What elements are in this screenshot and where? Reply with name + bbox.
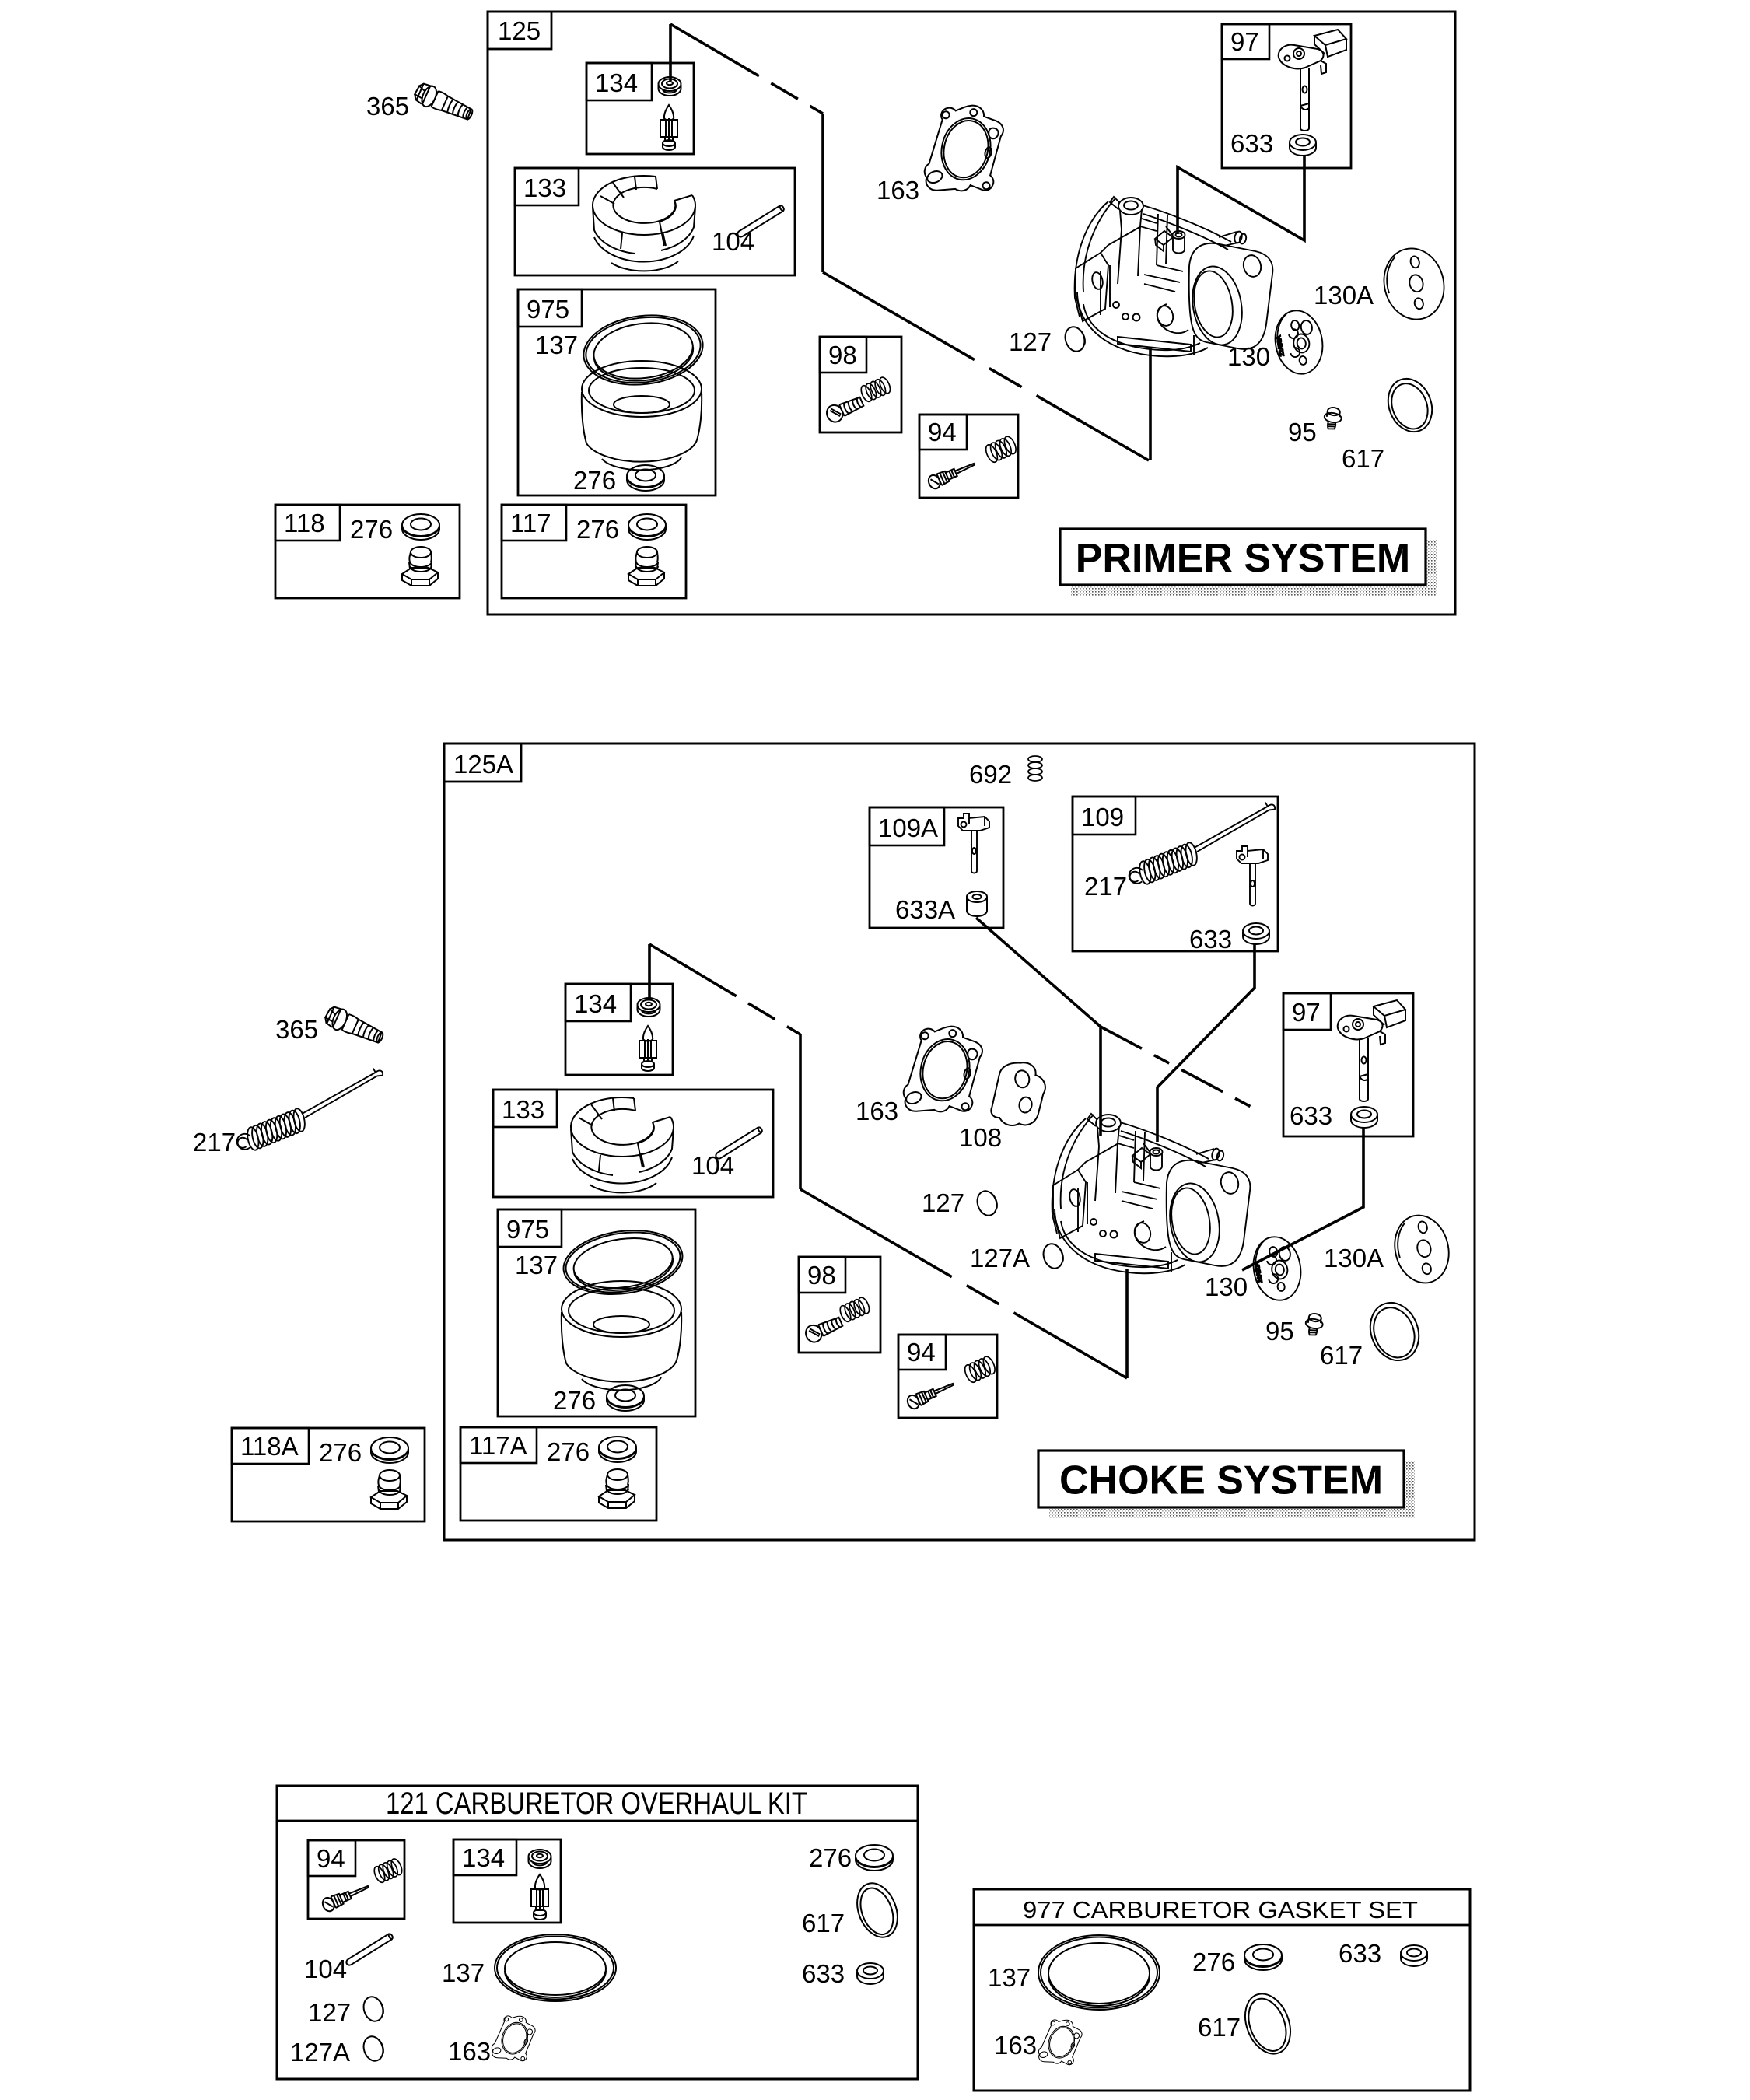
- svg-text:617: 617: [1342, 444, 1384, 473]
- svg-text:137: 137: [988, 1963, 1031, 1992]
- svg-text:276: 276: [809, 1843, 852, 1872]
- svg-text:104: 104: [691, 1151, 734, 1180]
- svg-text:104: 104: [712, 227, 754, 256]
- svg-text:137: 137: [442, 1958, 485, 1987]
- svg-text:104: 104: [304, 1955, 347, 1983]
- svg-text:97: 97: [1292, 998, 1321, 1027]
- svg-text:127: 127: [308, 1998, 351, 2027]
- svg-text:163: 163: [994, 2031, 1037, 2060]
- svg-text:127: 127: [1009, 327, 1052, 356]
- svg-text:975: 975: [527, 295, 569, 324]
- svg-text:130A: 130A: [1324, 1244, 1384, 1272]
- svg-text:109A: 109A: [878, 814, 938, 842]
- svg-text:PRIMER SYSTEM: PRIMER SYSTEM: [1076, 536, 1411, 581]
- svg-text:127A: 127A: [970, 1244, 1030, 1272]
- svg-text:125A: 125A: [453, 750, 513, 779]
- svg-text:633: 633: [1189, 925, 1232, 954]
- svg-text:137: 137: [535, 331, 578, 359]
- svg-text:365: 365: [275, 1015, 318, 1044]
- svg-text:276: 276: [319, 1438, 362, 1467]
- svg-text:118: 118: [284, 509, 325, 537]
- svg-text:163: 163: [448, 2037, 491, 2066]
- svg-text:95: 95: [1288, 418, 1317, 446]
- svg-text:130: 130: [1205, 1272, 1248, 1301]
- svg-text:276: 276: [1192, 1948, 1235, 1976]
- svg-text:276: 276: [350, 515, 393, 544]
- svg-text:217: 217: [193, 1128, 236, 1157]
- svg-text:276: 276: [573, 466, 616, 495]
- svg-text:633: 633: [802, 1959, 845, 1988]
- svg-text:22A90A: 22A90A: [1275, 335, 1286, 357]
- svg-text:127A: 127A: [290, 2038, 350, 2067]
- svg-text:217: 217: [1084, 872, 1127, 901]
- svg-text:134: 134: [595, 68, 638, 97]
- svg-text:121 CARBURETOR OVERHAUL KIT: 121 CARBURETOR OVERHAUL KIT: [386, 1787, 807, 1821]
- svg-text:98: 98: [807, 1261, 836, 1290]
- svg-text:633: 633: [1290, 1101, 1332, 1130]
- svg-text:163: 163: [877, 176, 919, 205]
- svg-text:633: 633: [1230, 129, 1273, 158]
- svg-text:134: 134: [574, 989, 617, 1018]
- svg-text:109: 109: [1081, 803, 1124, 831]
- svg-text:133: 133: [523, 173, 566, 202]
- svg-text:692: 692: [969, 760, 1012, 789]
- svg-text:97: 97: [1230, 27, 1259, 56]
- svg-text:95: 95: [1265, 1317, 1294, 1346]
- svg-text:22A90A: 22A90A: [1253, 1262, 1264, 1283]
- svg-text:617: 617: [1198, 2013, 1241, 2042]
- svg-text:130: 130: [1227, 342, 1270, 371]
- svg-text:133: 133: [502, 1095, 544, 1124]
- svg-text:163: 163: [856, 1097, 898, 1125]
- svg-text:633A: 633A: [895, 895, 955, 924]
- svg-text:94: 94: [928, 418, 957, 446]
- svg-text:117A: 117A: [469, 1431, 527, 1460]
- svg-text:CHOKE SYSTEM: CHOKE SYSTEM: [1059, 1458, 1383, 1503]
- svg-text:617: 617: [802, 1909, 845, 1937]
- svg-text:365: 365: [366, 92, 409, 121]
- svg-text:125: 125: [498, 16, 541, 45]
- svg-text:137: 137: [515, 1251, 558, 1279]
- svg-text:977 CARBURETOR GASKET SET: 977 CARBURETOR GASKET SET: [1023, 1896, 1418, 1923]
- svg-text:108: 108: [959, 1123, 1002, 1152]
- svg-text:118A: 118A: [240, 1432, 299, 1461]
- svg-text:276: 276: [553, 1386, 596, 1415]
- svg-text:127: 127: [922, 1188, 964, 1217]
- svg-text:276: 276: [547, 1437, 590, 1466]
- svg-text:94: 94: [907, 1338, 936, 1367]
- svg-text:98: 98: [828, 341, 857, 369]
- svg-text:134: 134: [462, 1843, 505, 1872]
- svg-text:94: 94: [317, 1844, 345, 1873]
- svg-text:975: 975: [506, 1215, 549, 1244]
- svg-text:633: 633: [1339, 1939, 1381, 1968]
- svg-text:617: 617: [1320, 1341, 1363, 1370]
- svg-text:130A: 130A: [1314, 281, 1374, 310]
- svg-text:117: 117: [510, 509, 551, 537]
- svg-text:276: 276: [576, 515, 619, 544]
